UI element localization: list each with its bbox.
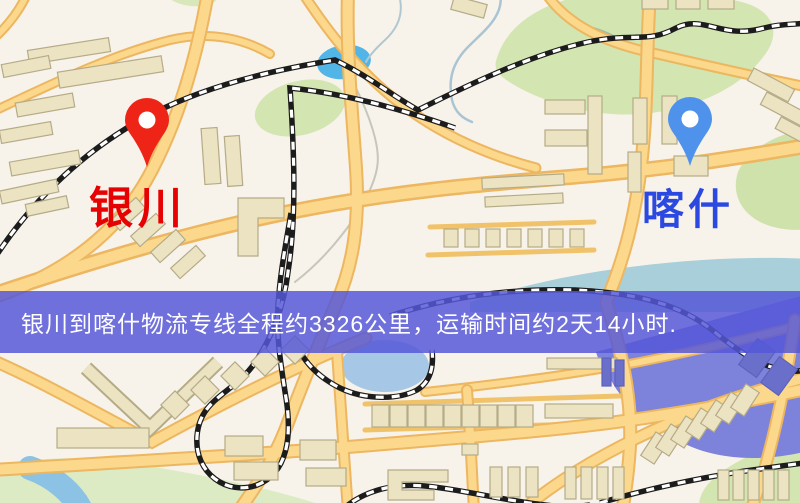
route-info-text: 银川到喀什物流专线全程约3326公里，运输时间约2天14小时. [21,305,677,339]
route-info-banner: 银川到喀什物流专线全程约3326公里，运输时间约2天14小时. [0,291,800,353]
map-screenshot: 银川 喀什 银川到喀什物流专线全程约3326公里，运输时间约2天14小时. [0,0,800,503]
map-canvas [0,0,800,503]
